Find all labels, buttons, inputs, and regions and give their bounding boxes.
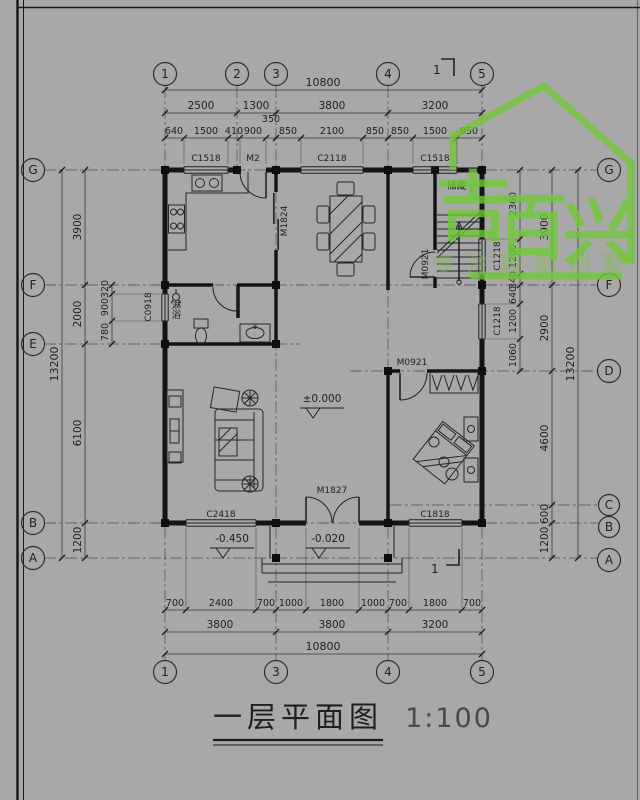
living-room-furniture (167, 387, 263, 492)
dim-label: 900 (100, 298, 111, 316)
door-label: M0921 (421, 249, 431, 280)
axis-label: A (605, 553, 614, 567)
drawing-scale: 1:100 (405, 703, 493, 734)
axis-label: G (28, 163, 37, 177)
axis-label: 1 (161, 67, 169, 81)
dim-label: 410 (225, 126, 243, 137)
furniture (167, 172, 478, 492)
dim-label: 1200 (508, 309, 519, 333)
level-yard: -0.450 (215, 533, 249, 545)
door-label: M1824 (280, 205, 290, 236)
dim-label: 13200 (564, 347, 577, 382)
dimensions-top: 640 1500 410 900 350 850 2100 850 850 15… (165, 76, 478, 137)
window-label: C1218 (493, 306, 503, 335)
dim-label: 600 (539, 504, 551, 524)
axis-label: 1 (161, 665, 169, 679)
floor-plan-drawing: 1 1 ±0.000 -0.020 -0.450 储藏 淋浴 C1518 M2 … (0, 0, 640, 800)
axis-label: B (605, 520, 613, 534)
axis-label: 5 (478, 67, 486, 81)
window-label: C2118 (317, 154, 346, 164)
level-markers: ±0.000 -0.020 -0.450 (210, 393, 350, 558)
dim-label: 6100 (72, 420, 84, 447)
axis-label: A (29, 551, 38, 565)
section-label-top: 1 (433, 63, 441, 77)
axis-label: F (606, 278, 613, 292)
axis-label: F (30, 278, 37, 292)
axis-label: 4 (384, 665, 392, 679)
dim-label: 1500 (423, 126, 447, 137)
dim-label: 3200 (422, 100, 449, 112)
dim-label: 850 (279, 126, 297, 137)
dim-label: 320 (100, 280, 111, 298)
dim-label: 3800 (319, 100, 346, 112)
dim-label: 780 (100, 323, 111, 341)
dim-label: 1800 (423, 598, 447, 609)
watermark-tagline: 专注轻钢别墅 (432, 251, 636, 278)
dim-label: 1300 (243, 100, 270, 112)
dim-label: 2900 (539, 315, 551, 342)
dim-label: 700 (257, 598, 275, 609)
axis-label: 2 (233, 67, 241, 81)
kitchen-counter (168, 172, 248, 250)
dim-label: 1800 (320, 598, 344, 609)
window-label: C1818 (420, 510, 449, 520)
drawing-sheet: 1 1 ±0.000 -0.020 -0.450 储藏 淋浴 C1518 M2 … (0, 0, 640, 800)
door-label: M0921 (397, 358, 428, 368)
level-main: ±0.000 (303, 393, 342, 405)
dim-label: 4600 (539, 425, 551, 452)
dim-label: 1000 (279, 598, 303, 609)
dim-label: 2500 (188, 100, 215, 112)
dim-label: 3800 (319, 619, 346, 631)
dim-label: 850 (366, 126, 384, 137)
dim-label: 10800 (306, 640, 341, 653)
dim-label: 2400 (209, 598, 233, 609)
dim-label: 1500 (194, 126, 218, 137)
dimensions-left: 320 900 780 3900 2000 6100 1200 13200 (48, 214, 111, 554)
window-label: C1518 (191, 154, 220, 164)
section-label-bottom: 1 (431, 562, 439, 576)
dim-label: 350 (262, 114, 280, 125)
dim-label: 700 (166, 598, 184, 609)
dim-label: 1200 (72, 527, 84, 554)
dim-label: 10800 (306, 76, 341, 89)
axis-label: 3 (272, 665, 280, 679)
dim-label: 640 (165, 126, 183, 137)
dim-label: 850 (391, 126, 409, 137)
drawing-title: 一层平面图 (213, 700, 383, 734)
door-label: M1827 (317, 486, 348, 496)
axis-label: 4 (384, 67, 392, 81)
doors (213, 172, 435, 523)
dim-label: 1200 (539, 527, 551, 554)
bathroom-fixtures (171, 289, 270, 344)
bedroom-furniture (413, 372, 478, 484)
door-label: M2 (246, 154, 260, 164)
axis-label: E (29, 337, 37, 351)
dimensions-bottom: 700 2400 700 1000 1800 1000 700 1800 700… (166, 598, 481, 653)
dim-label: 900 (244, 126, 262, 137)
window-label: C0918 (144, 292, 154, 321)
dining-table (317, 182, 375, 276)
grid-lines (44, 86, 598, 660)
dim-label: 2100 (320, 126, 344, 137)
axis-label: C (605, 498, 613, 512)
dim-label: 700 (463, 598, 481, 609)
axis-label: G (604, 163, 613, 177)
window-label: C2418 (206, 510, 235, 520)
title-block: 一层平面图 1:100 (213, 700, 493, 745)
dim-label: 1000 (361, 598, 385, 609)
axis-label: D (604, 364, 613, 378)
axis-label: 5 (478, 665, 486, 679)
axis-label: 3 (272, 67, 280, 81)
dim-label: 640 (508, 286, 519, 304)
dim-label: 3900 (72, 214, 84, 241)
dim-label: 13200 (48, 347, 61, 382)
dim-label: 1060 (508, 343, 519, 367)
dim-label: 700 (389, 598, 407, 609)
room-label-shower: 淋浴 (170, 299, 182, 320)
axis-label: B (29, 516, 37, 530)
level-porch: -0.020 (311, 533, 345, 545)
dim-label: 3200 (422, 619, 449, 631)
watermark: 吉 百 兴 专注轻钢别墅 (432, 86, 636, 278)
dim-label: 3800 (207, 619, 234, 631)
dim-label: 2000 (72, 301, 84, 328)
